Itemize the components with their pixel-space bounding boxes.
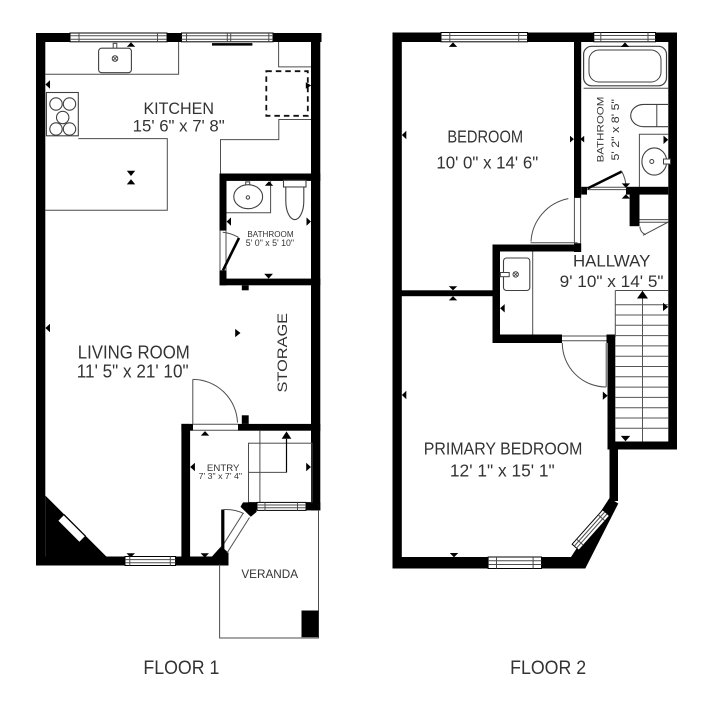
svg-text:BATHROOM: BATHROOM [595, 97, 605, 163]
svg-text:5' 0" x 5' 10": 5' 0" x 5' 10" [246, 238, 294, 248]
svg-text:BEDROOM: BEDROOM [447, 127, 523, 147]
svg-text:KITCHEN: KITCHEN [143, 100, 214, 118]
svg-text:11' 5" x 21' 10": 11' 5" x 21' 10" [77, 362, 189, 382]
svg-text:7' 3" x 7' 4": 7' 3" x 7' 4" [199, 471, 242, 481]
svg-text:9' 10" x 14' 5": 9' 10" x 14' 5" [560, 272, 664, 291]
svg-text:STORAGE: STORAGE [275, 313, 291, 393]
svg-text:FLOOR 2: FLOOR 2 [510, 657, 586, 679]
svg-text:HALLWAY: HALLWAY [573, 251, 650, 270]
svg-text:FLOOR 1: FLOOR 1 [143, 657, 219, 679]
svg-text:12' 1" x 15' 1": 12' 1" x 15' 1" [450, 460, 555, 480]
svg-text:PRIMARY BEDROOM: PRIMARY BEDROOM [424, 439, 583, 459]
svg-text:VERANDA: VERANDA [241, 568, 298, 581]
svg-text:10' 0" x 14' 6": 10' 0" x 14' 6" [436, 152, 538, 172]
svg-text:15' 6" x 7' 8": 15' 6" x 7' 8" [133, 117, 225, 135]
svg-text:LIVING ROOM: LIVING ROOM [78, 343, 190, 363]
svg-text:5' 2" x 8' 5": 5' 2" x 8' 5" [610, 99, 622, 161]
